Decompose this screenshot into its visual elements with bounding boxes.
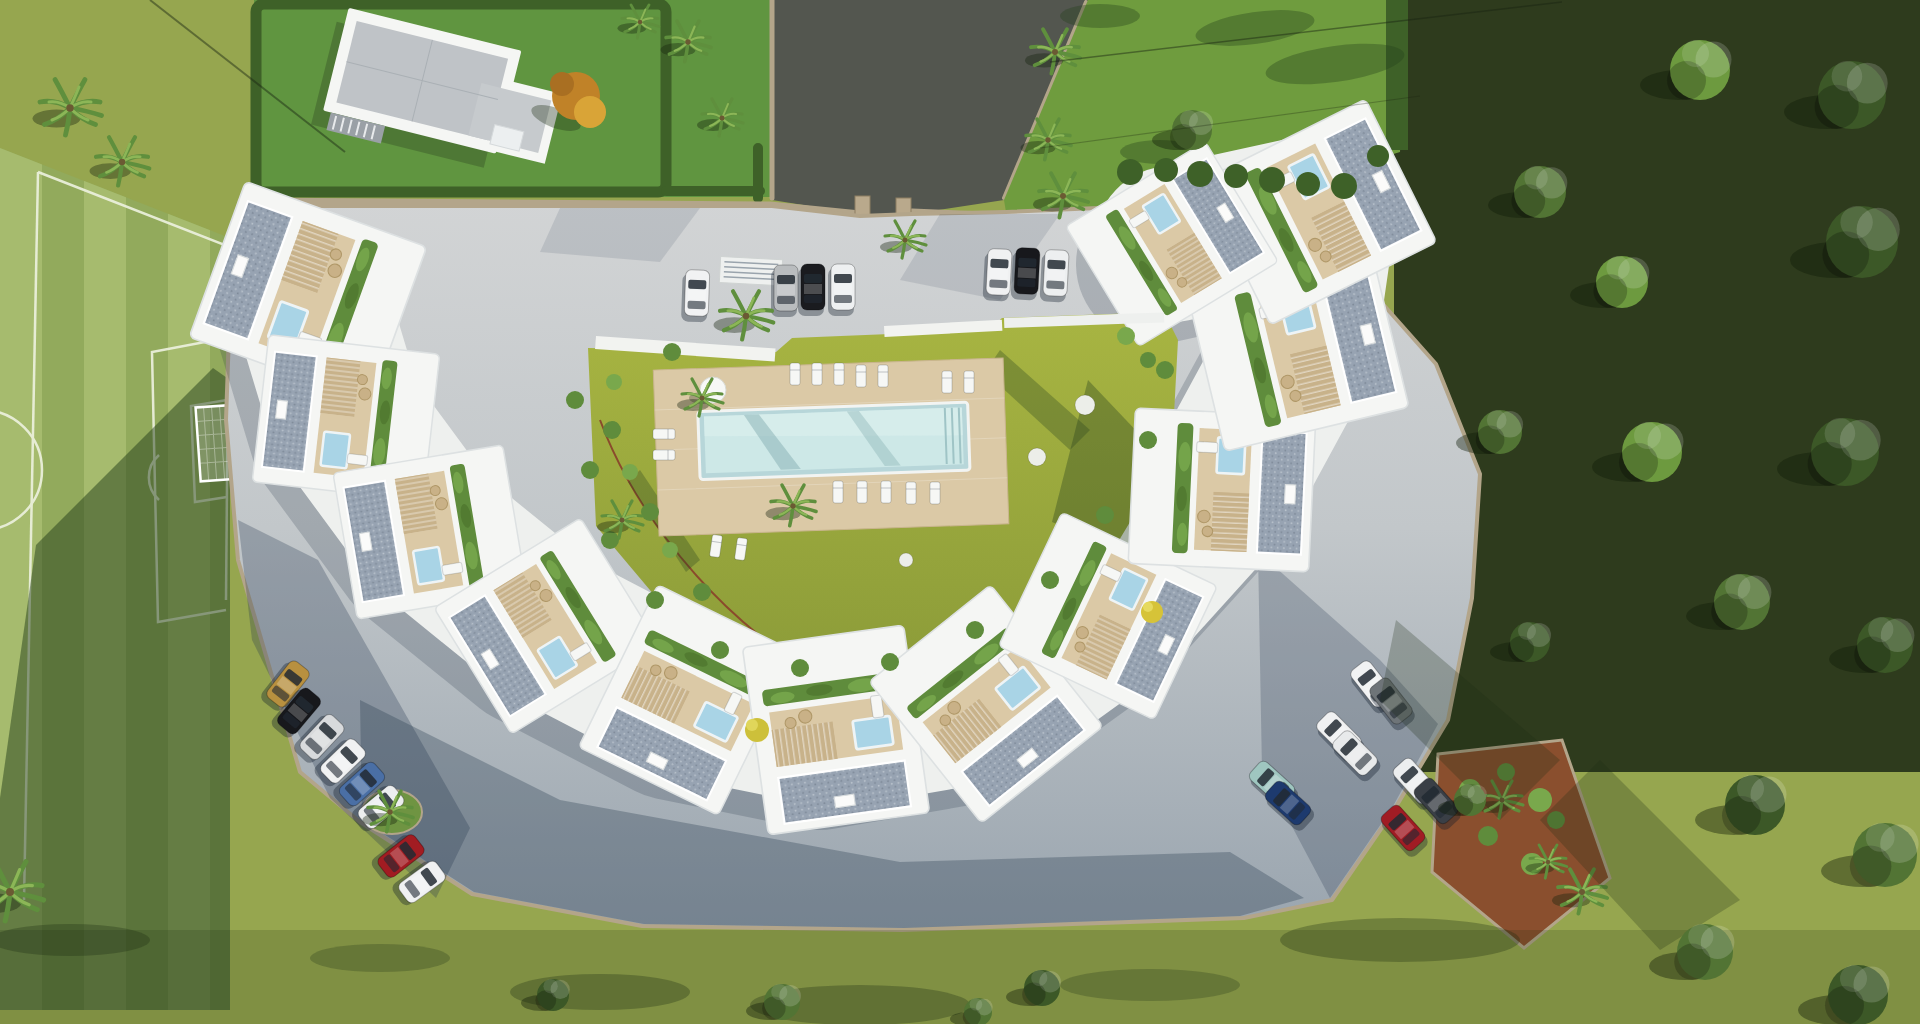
sun-lounger	[878, 365, 888, 387]
sun-lounger	[930, 482, 940, 504]
shrub	[1156, 361, 1174, 379]
sun-lounger	[856, 365, 866, 387]
shrub	[581, 461, 599, 479]
sun-lounger	[881, 481, 891, 503]
sun-lounger	[653, 429, 675, 439]
shrub	[1331, 173, 1357, 199]
shrub	[1367, 145, 1389, 167]
sun-lounger	[790, 363, 800, 385]
parked-car	[983, 248, 1013, 301]
shrub	[1117, 327, 1135, 345]
shrub	[603, 421, 621, 439]
shrub	[606, 374, 622, 390]
shrub	[711, 641, 729, 659]
stepping-stone	[1075, 395, 1095, 415]
shrub	[601, 531, 619, 549]
shrub	[622, 464, 638, 480]
shrub	[1224, 164, 1248, 188]
scene-svg	[0, 0, 1920, 1024]
parked-car	[798, 264, 825, 316]
sun-lounger	[834, 363, 844, 385]
sun-lounger	[942, 371, 952, 393]
stepping-stone	[1028, 448, 1046, 466]
shrub	[881, 653, 899, 671]
shrub	[1259, 167, 1285, 193]
shrub	[791, 659, 809, 677]
shrub	[566, 391, 584, 409]
sun-lounger	[833, 481, 843, 503]
sun-lounger	[964, 371, 974, 393]
shrub	[1528, 788, 1552, 812]
shrub	[663, 343, 681, 361]
shrub	[662, 542, 678, 558]
parked-car	[1040, 249, 1070, 302]
shrub	[1187, 161, 1213, 187]
shrub	[1041, 571, 1059, 589]
parked-car	[1011, 247, 1041, 300]
shrub	[1478, 826, 1498, 846]
shrub	[1296, 172, 1320, 196]
sun-lounger	[812, 363, 822, 385]
parked-car	[828, 264, 855, 316]
parked-car	[681, 269, 710, 322]
shrub	[1096, 506, 1114, 524]
shrub	[1140, 352, 1156, 368]
sun-lounger	[653, 450, 675, 460]
shrub	[966, 621, 984, 639]
shrub	[641, 503, 659, 521]
shrub	[693, 583, 711, 601]
shrub	[1139, 431, 1157, 449]
stepping-stone	[899, 553, 913, 567]
shrub	[1154, 158, 1178, 182]
sun-lounger	[906, 482, 916, 504]
parked-car	[771, 265, 798, 317]
shrub	[646, 591, 664, 609]
shrub	[1117, 159, 1143, 185]
aerial-render	[0, 0, 1920, 1024]
sun-lounger	[857, 481, 867, 503]
